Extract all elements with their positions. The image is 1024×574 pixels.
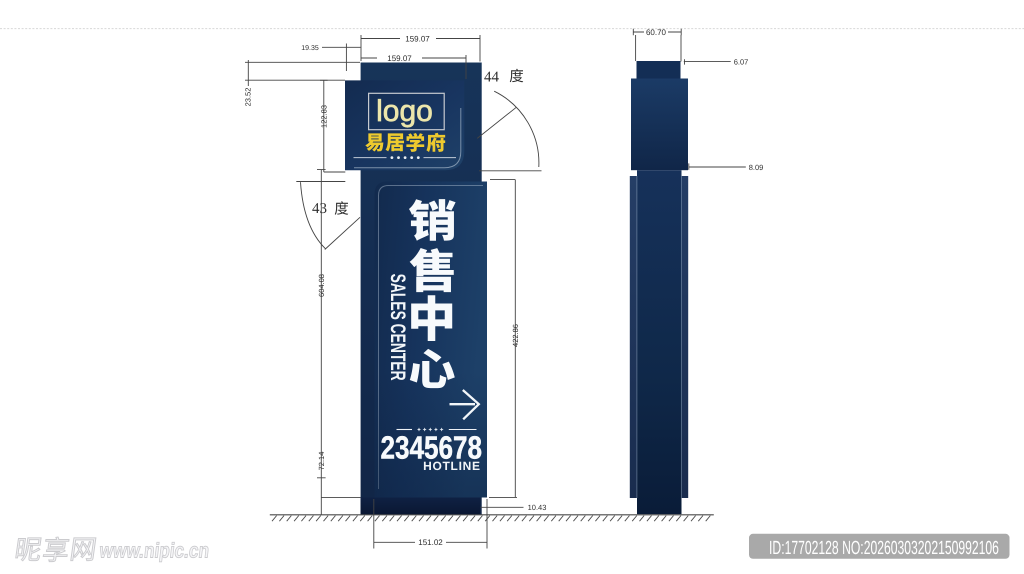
svg-text:151.02: 151.02 <box>418 538 443 547</box>
svg-text:60.70: 60.70 <box>646 28 667 37</box>
svg-text:72.14: 72.14 <box>317 452 326 471</box>
svg-text:19.35: 19.35 <box>301 45 319 52</box>
svg-text:logo: logo <box>376 95 433 128</box>
svg-text:159.07: 159.07 <box>387 54 412 63</box>
svg-text:422.86: 422.86 <box>511 324 520 347</box>
svg-text:HOTLINE: HOTLINE <box>423 459 481 473</box>
svg-text:23.52: 23.52 <box>244 88 253 107</box>
svg-text:159.07: 159.07 <box>405 34 430 43</box>
svg-text:10.43: 10.43 <box>528 503 547 512</box>
svg-text:www.nipic.cn: www.nipic.cn <box>98 540 211 563</box>
svg-text:6.07: 6.07 <box>734 57 749 66</box>
svg-text:44: 44 <box>484 70 500 86</box>
svg-text:43: 43 <box>312 201 327 217</box>
svg-text:122.83: 122.83 <box>320 105 329 128</box>
svg-text:604.08: 604.08 <box>317 274 326 297</box>
svg-text:ID:17702128 NO:202603032021509: ID:17702128 NO:20260303202150992106 <box>769 538 999 559</box>
svg-text:8.09: 8.09 <box>749 163 764 172</box>
svg-text:SALES CENTER: SALES CENTER <box>386 274 409 381</box>
